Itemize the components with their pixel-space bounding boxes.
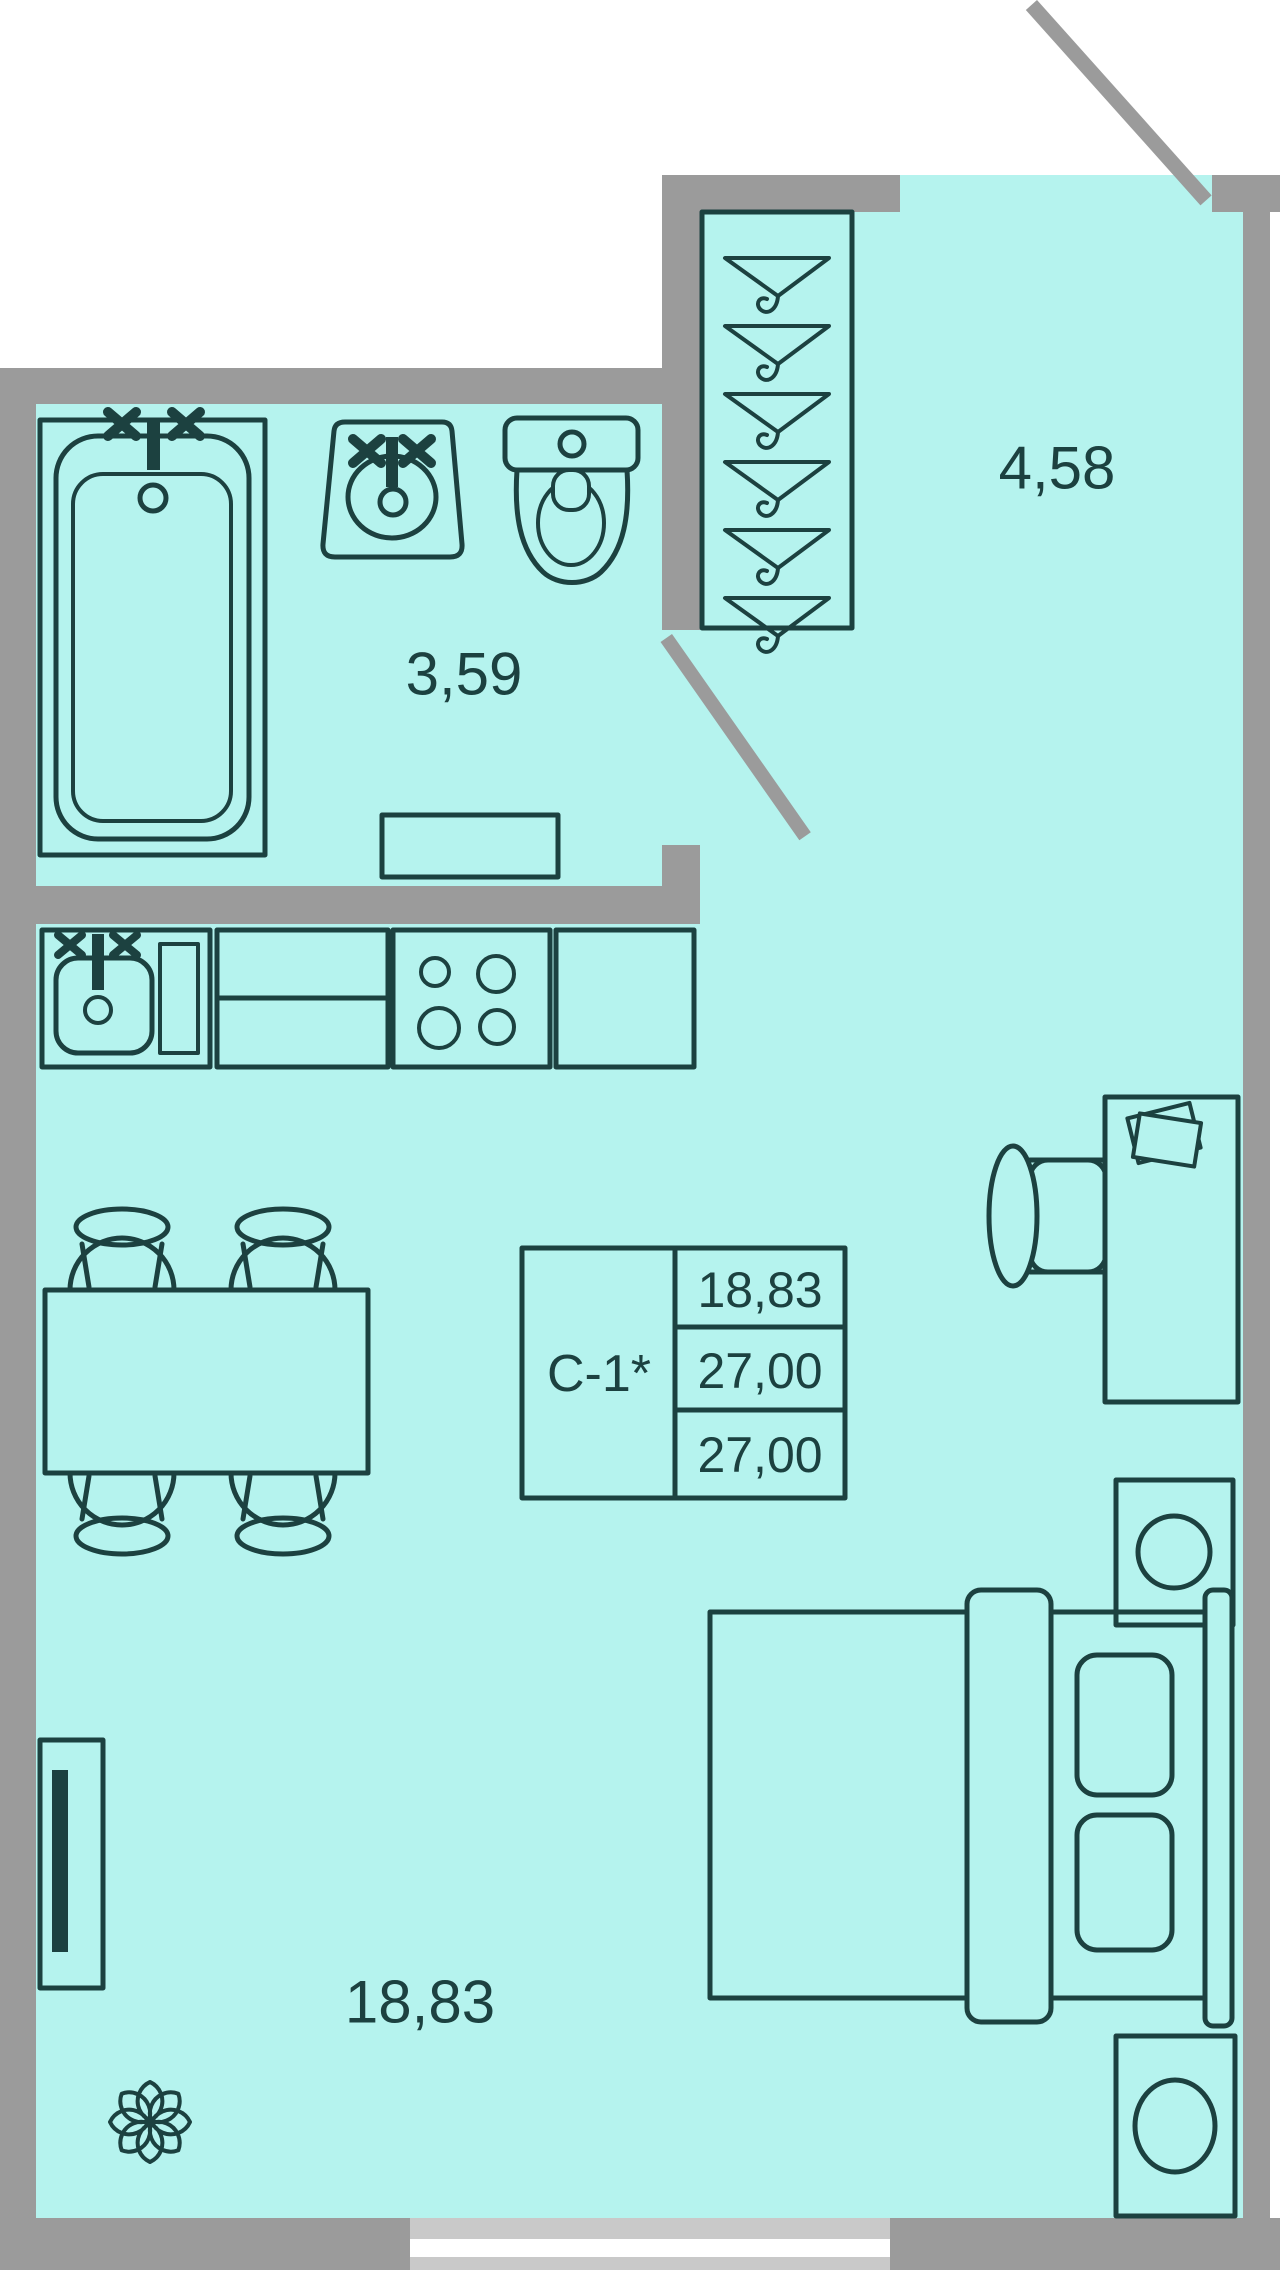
pillow (1077, 1655, 1172, 1795)
entry-doorway-floor (900, 175, 1212, 212)
floor-plan: С-1* 18,83 27,00 27,00 4,58 3,59 18,83 (0, 0, 1280, 2270)
bathtub-faucet-icon (147, 418, 160, 470)
entry-corner-wall (1212, 175, 1280, 212)
bathroom-door-jamb (662, 845, 700, 886)
floor-plan-page: С-1* 18,83 27,00 27,00 4,58 3,59 18,83 (0, 0, 1280, 2270)
sink-faucet-icon (386, 437, 398, 487)
kitchen-faucet-icon (92, 934, 104, 990)
bed-headboard (1205, 1590, 1232, 2026)
desk-paper-icon (1133, 1113, 1201, 1166)
stamp-value-total-reduced: 27,00 (697, 1427, 822, 1483)
stamp-value-living: 18,83 (697, 1262, 822, 1318)
pillow (1077, 1815, 1172, 1950)
dining-table (45, 1290, 368, 1473)
window-glass (410, 2239, 890, 2257)
room-label-living-room: 18,83 (345, 1969, 495, 2036)
desk-chair-back (989, 1146, 1037, 1286)
bed-fold (967, 1590, 1051, 2022)
bathroom-bottom-wall (0, 886, 700, 924)
room-label-hallway: 4,58 (999, 435, 1116, 502)
entry-door-leaf (1026, 0, 1212, 205)
right-wall (1243, 175, 1270, 2270)
room-label-bathroom: 3,59 (406, 641, 523, 708)
bathroom-top-wall (0, 368, 700, 404)
left-wall (0, 368, 36, 2270)
window (410, 2218, 890, 2270)
bathroom-hallway-divider-wall (662, 175, 700, 630)
stamp-value-total: 27,00 (697, 1343, 822, 1399)
radiator-core (52, 1770, 68, 1952)
stamp-unit-label: С-1* (547, 1345, 651, 1403)
